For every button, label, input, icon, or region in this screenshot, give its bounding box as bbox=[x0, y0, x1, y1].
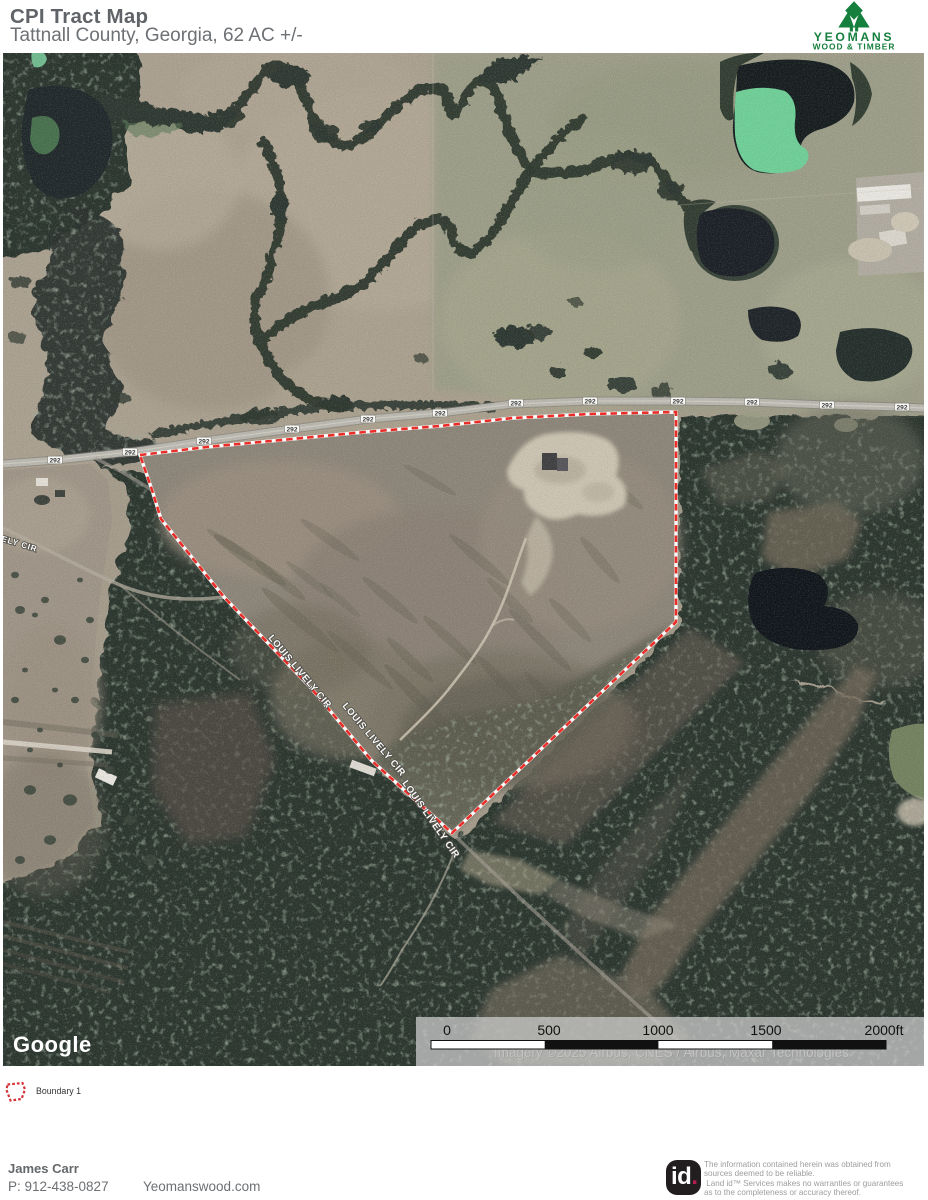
svg-text:0: 0 bbox=[443, 1022, 451, 1038]
svg-text:2000ft: 2000ft bbox=[865, 1022, 904, 1038]
svg-text:1500: 1500 bbox=[750, 1022, 781, 1038]
svg-text:1000: 1000 bbox=[642, 1022, 673, 1038]
svg-text:500: 500 bbox=[537, 1022, 561, 1038]
svg-text:WOOD & TIMBER: WOOD & TIMBER bbox=[813, 42, 896, 52]
svg-text:Google: Google bbox=[13, 1032, 92, 1057]
